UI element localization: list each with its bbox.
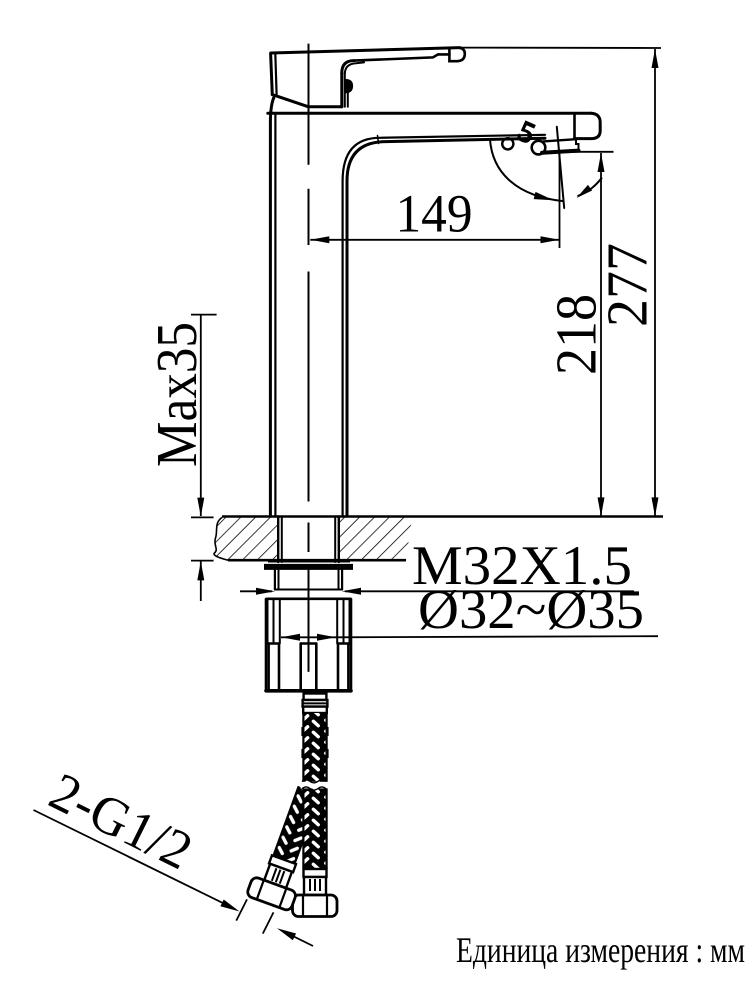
svg-text:Max35: Max35 bbox=[144, 322, 209, 467]
svg-text:Ø32~Ø35: Ø32~Ø35 bbox=[418, 579, 644, 641]
svg-text:149: 149 bbox=[396, 184, 473, 244]
svg-text:Единица измерения : мм: Единица измерения : мм bbox=[456, 930, 745, 970]
svg-text:277: 277 bbox=[595, 243, 660, 327]
